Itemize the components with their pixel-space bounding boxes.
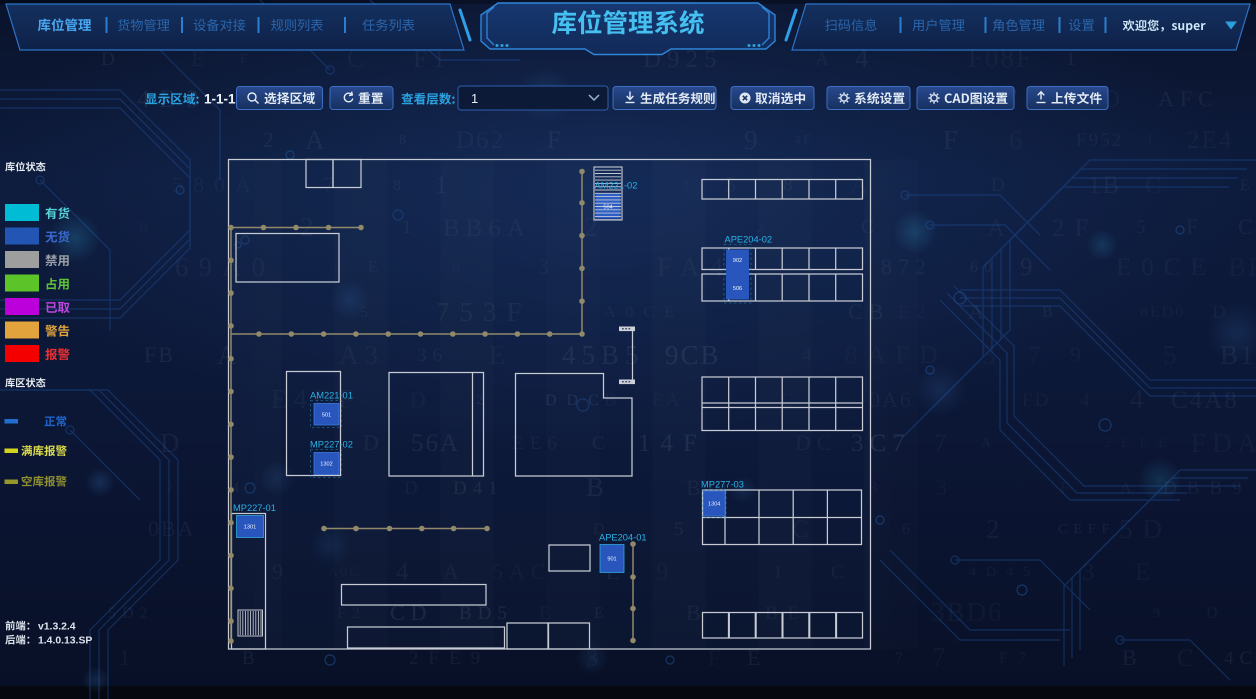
svg-text:F: F [1186,214,1200,239]
svg-text:8ED0: 8ED0 [1140,304,1185,321]
svg-text:7: 7 [934,430,953,457]
svg-text:D: D [160,428,190,458]
svg-text:901: 901 [607,557,616,563]
svg-text:D: D [1206,605,1220,622]
svg-text:A: A [1120,480,1134,497]
svg-text:2F: 2F [1052,215,1098,242]
svg-text:A: A [815,49,839,70]
svg-text:4: 4 [1080,390,1092,411]
svg-text:BF: BF [1228,252,1256,282]
svg-text:2: 2 [166,481,179,496]
svg-text:7: 7 [895,650,913,667]
svg-text:C8: C8 [1238,214,1256,239]
svg-text:B: B [444,89,459,110]
svg-text:A: A [987,215,1007,242]
svg-text:3: 3 [982,340,998,370]
svg-text:506: 506 [733,286,742,292]
svg-text:9: 9 [1020,254,1043,281]
svg-text:MP227-02: MP227-02 [310,440,353,450]
svg-text:D: D [991,175,1007,196]
svg-text:MP227-01: MP227-01 [233,503,276,513]
svg-text:4D45: 4D45 [969,565,1040,580]
svg-text:D: D [101,49,117,70]
svg-text:4C: 4C [1224,648,1256,669]
svg-text:2: 2 [263,127,276,152]
svg-text:5: 5 [1136,217,1148,238]
svg-text:9: 9 [1070,342,1083,367]
svg-text:4B3: 4B3 [137,86,209,113]
svg-text:B: B [1042,304,1059,321]
svg-text:60: 60 [970,259,998,276]
svg-text:3: 3 [1082,559,1105,586]
svg-text:5D: 5D [1119,514,1172,544]
svg-text:5: 5 [1163,340,1179,370]
svg-text:B: B [242,648,257,669]
svg-text:A: A [981,436,997,451]
svg-text:D62: D62 [456,127,505,154]
svg-text:C: C [1145,172,1168,199]
svg-text:A: A [305,125,335,155]
svg-text:B1: B1 [1220,340,1256,370]
svg-text:7: 7 [1028,342,1047,369]
svg-text:F: F [1060,480,1079,497]
svg-text:B: B [1122,645,1139,670]
svg-text:FD: FD [1022,390,1050,411]
svg-text:1301: 1301 [244,525,256,531]
svg-text:F: F [240,52,258,67]
svg-text:CEFF: CEFF [1058,522,1115,537]
svg-text:1: 1 [471,91,478,106]
svg-text:8: 8 [399,133,408,148]
svg-text:2E4: 2E4 [1187,127,1233,154]
svg-text:0BA: 0BA [148,516,196,541]
svg-text:1: 1 [1066,49,1082,70]
svg-text:F952: F952 [1076,130,1123,151]
svg-text:1-1-1: 1-1-1 [204,92,236,107]
svg-text:FB: FB [144,342,175,367]
svg-text:902: 902 [733,258,742,264]
svg-text:2: 2 [986,514,1002,544]
svg-text:7: 7 [932,642,952,672]
svg-text:5D2: 5D2 [108,605,154,622]
svg-text:1302: 1302 [320,462,332,468]
svg-text:D: D [1212,302,1232,323]
svg-text:B: B [139,221,154,236]
svg-text:A: A [968,299,994,324]
svg-text:504: 504 [603,205,612,211]
svg-text:C: C [1177,645,1200,672]
svg-text:C4A8: C4A8 [1171,387,1239,414]
svg-text:F7: F7 [999,650,1036,667]
svg-text:MP277-03: MP277-03 [701,480,744,490]
svg-text:AM221-02: AM221-02 [595,181,638,191]
svg-text:1: 1 [119,645,136,670]
svg-text:9: 9 [744,125,768,155]
svg-text:2EEE: 2EEE [1104,436,1177,451]
svg-text:4F: 4F [794,133,813,148]
svg-text:4: 4 [1130,384,1154,414]
svg-text:501: 501 [322,412,331,418]
svg-text:6: 6 [1009,125,1025,155]
svg-text:F: F [547,127,563,154]
svg-text:AM221-01: AM221-01 [310,391,353,401]
svg-text:3BD6: 3BD6 [931,597,1004,627]
svg-text:E0CE: E0CE [1116,254,1216,281]
svg-text:DBB9: DBB9 [1163,478,1252,499]
svg-text:E: E [1240,177,1256,194]
svg-text:FDA: FDA [1191,428,1256,458]
svg-text:2FE9: 2FE9 [409,648,490,669]
svg-text:F: F [943,125,960,155]
svg-text:E: E [1135,559,1160,586]
svg-text:1.4.0.13.SP: 1.4.0.13.SP [38,636,92,647]
svg-text:3: 3 [936,475,953,500]
svg-text:1: 1 [1146,132,1160,149]
svg-text:v1.3.2.4: v1.3.2.4 [38,622,76,633]
svg-text:APE204-02: APE204-02 [725,235,773,245]
svg-text:1304: 1304 [708,502,720,508]
svg-text:APE204-01: APE204-01 [599,533,647,543]
svg-text:1B: 1B [1088,172,1121,199]
svg-text:9: 9 [1153,606,1166,621]
svg-text:AFC: AFC [1158,86,1219,111]
